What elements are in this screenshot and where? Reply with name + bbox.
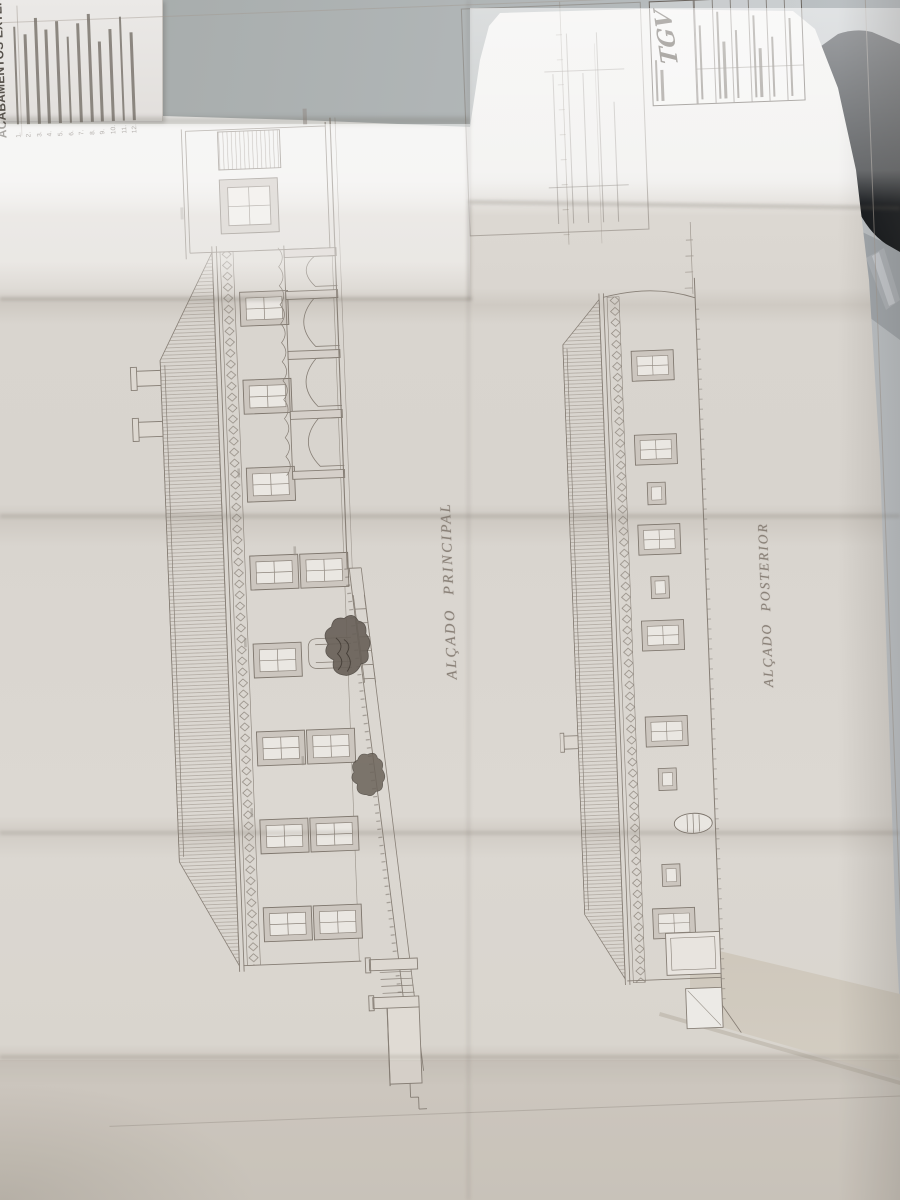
legend-item: 8.	[83, 0, 94, 135]
legend-item: 3.	[31, 0, 42, 137]
sheet-content: ACABAMENTOS EXTERIORES 1. 2. 3. 4. 5. 6.…	[0, 0, 900, 1200]
legend-item: 1.	[9, 0, 20, 138]
legend-item: 4.	[41, 0, 52, 137]
windows-lower	[300, 552, 363, 940]
legend-item: 2.	[20, 0, 31, 137]
right-wing	[181, 122, 330, 259]
chimneys	[130, 366, 163, 441]
elevation-principal-label: ALÇADO PRINCIPAL	[438, 502, 462, 680]
legend-item: 10.	[105, 0, 116, 134]
boundary-fence	[682, 222, 695, 294]
title-block-header: TGV	[650, 1, 698, 106]
bushes	[324, 614, 385, 797]
chimney	[560, 733, 579, 753]
legend-title: ACABAMENTOS EXTERIORES	[0, 0, 9, 139]
boundary-lines	[545, 0, 615, 250]
oval-window	[674, 813, 713, 834]
gate-wall	[365, 956, 427, 1111]
title-block: TGV	[649, 0, 806, 106]
title-block-logo: TGV	[649, 9, 684, 65]
height-annotation	[303, 109, 307, 125]
photo-of-architectural-drawing: ACABAMENTOS EXTERIORES 1. 2. 3. 4. 5. 6.…	[0, 0, 900, 1200]
windows-large	[631, 350, 696, 939]
garage-door	[665, 931, 721, 975]
elevation-posterior-drawing	[540, 218, 781, 1045]
shutter-door	[217, 130, 280, 170]
title-block-row	[784, 0, 807, 100]
ground-line	[694, 278, 722, 1005]
frame-border-bottom	[864, 0, 900, 1097]
finishes-legend: ACABAMENTOS EXTERIORES 1. 2. 3. 4. 5. 6.…	[0, 0, 137, 139]
legend-item: 12.	[126, 0, 137, 133]
legend-item: 5.	[52, 0, 63, 136]
legend-item: 6.	[62, 0, 73, 136]
elevation-principal-drawing	[111, 111, 449, 1122]
legend-item: 7.	[73, 0, 84, 135]
veranda-arcade	[278, 244, 345, 480]
left-annex	[686, 987, 742, 1035]
legend-item: 9.	[94, 0, 105, 134]
legend-item: 11.	[115, 0, 126, 134]
